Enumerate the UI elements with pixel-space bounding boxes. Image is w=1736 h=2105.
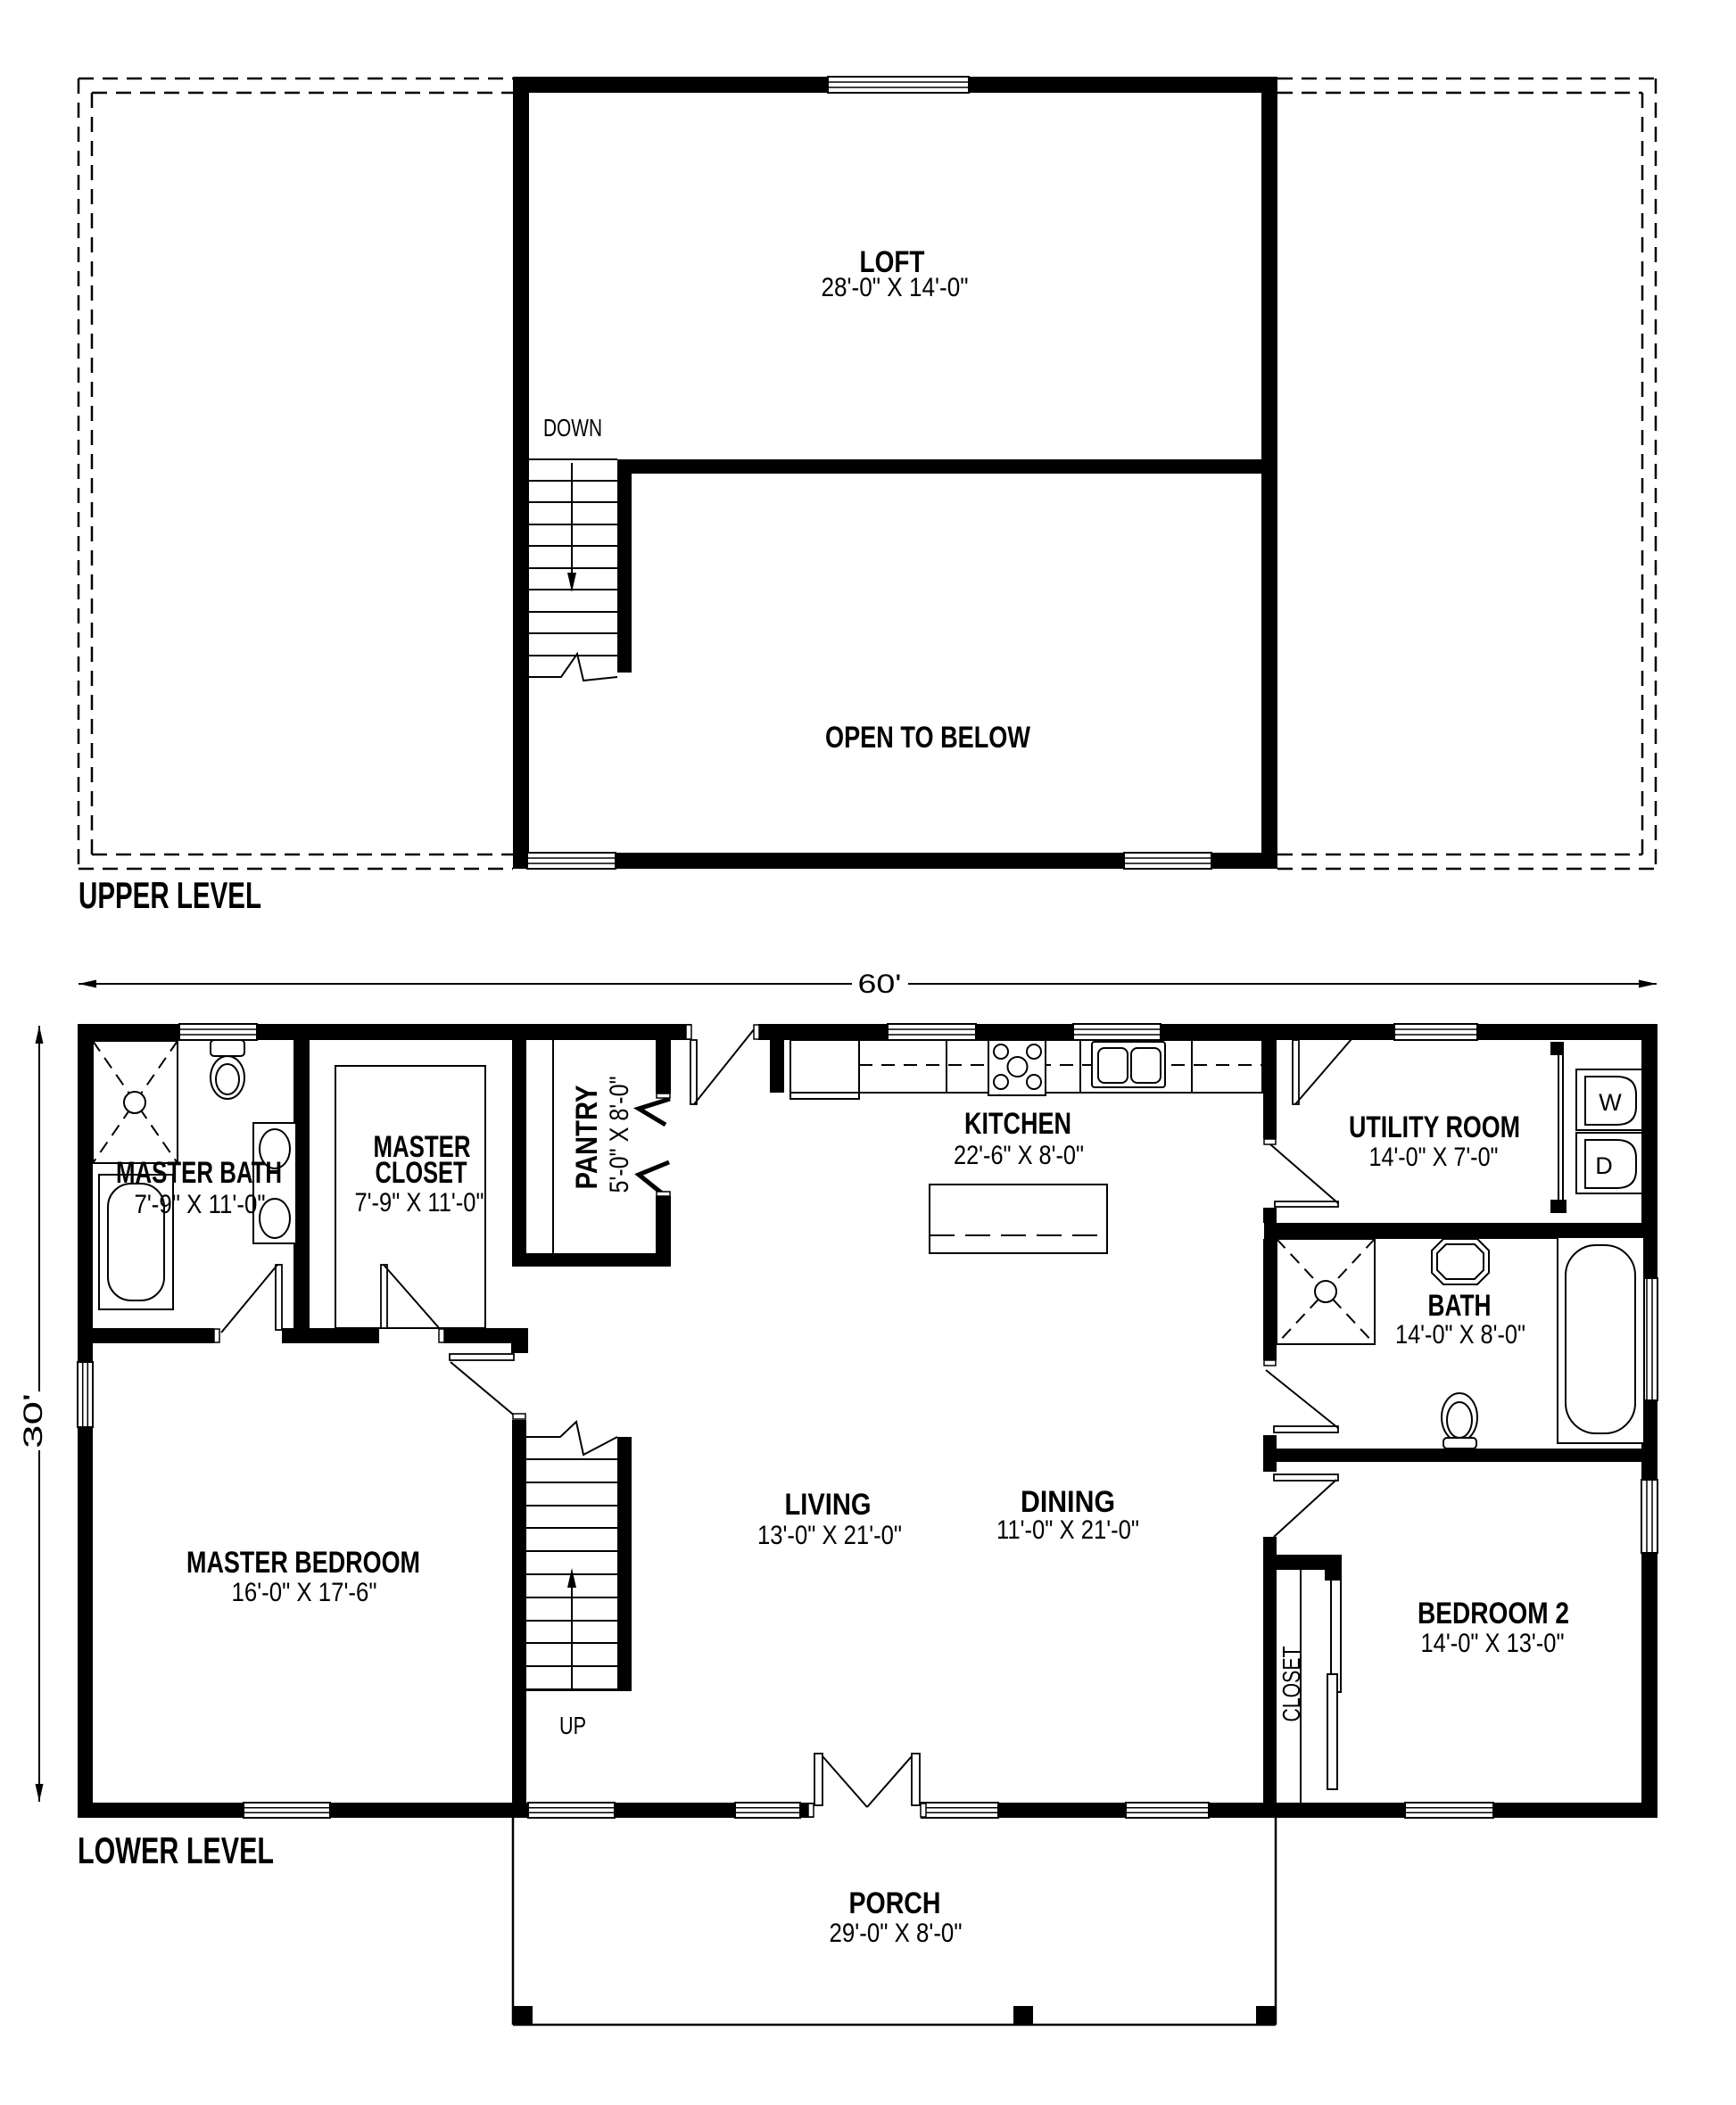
svg-text:DOWN: DOWN [543,414,602,442]
svg-text:UTILITY ROOM: UTILITY ROOM [1349,1110,1520,1144]
svg-text:29'-0" X 8'-0": 29'-0" X 8'-0" [830,1919,963,1948]
svg-text:14'-0" X 13'-0": 14'-0" X 13'-0" [1421,1629,1565,1658]
svg-text:PORCH: PORCH [849,1886,941,1920]
svg-text:DINING: DINING [1021,1485,1115,1519]
svg-text:CLOSET: CLOSET [376,1156,467,1190]
svg-text:22'-6" X 8'-0": 22'-6" X 8'-0" [954,1141,1084,1170]
svg-text:30': 30' [19,1393,48,1449]
svg-text:7'-9" X 11'-0": 7'-9" X 11'-0" [135,1190,266,1219]
svg-text:28'-0" X 14'-0": 28'-0" X 14'-0" [822,273,969,302]
svg-text:14'-0" X 8'-0": 14'-0" X 8'-0" [1395,1320,1525,1350]
svg-text:5'-0" X 8'-0": 5'-0" X 8'-0" [605,1077,634,1193]
svg-text:13'-0" X 21'-0": 13'-0" X 21'-0" [757,1521,902,1550]
svg-text:W: W [1599,1089,1622,1116]
svg-text:OPEN TO BELOW: OPEN TO BELOW [825,721,1031,755]
svg-text:LIVING: LIVING [785,1488,872,1522]
svg-text:7'-9" X 11'-0": 7'-9" X 11'-0" [355,1188,484,1218]
svg-text:CLOSET: CLOSET [1277,1647,1305,1722]
svg-text:KITCHEN: KITCHEN [964,1107,1071,1141]
svg-text:PANTRY: PANTRY [570,1085,604,1189]
svg-text:D: D [1595,1152,1613,1179]
svg-text:MASTER BATH: MASTER BATH [116,1156,282,1190]
svg-text:UPPER LEVEL: UPPER LEVEL [79,874,261,916]
svg-text:MASTER BEDROOM: MASTER BEDROOM [186,1546,420,1580]
svg-text:16'-0" X 17'-6": 16'-0" X 17'-6" [232,1578,377,1607]
svg-text:BEDROOM 2: BEDROOM 2 [1418,1597,1569,1630]
svg-text:11'-0" X 21'-0": 11'-0" X 21'-0" [996,1515,1139,1545]
svg-text:60': 60' [858,970,902,999]
svg-text:UP: UP [559,1712,586,1739]
svg-text:BATH: BATH [1428,1289,1492,1323]
svg-text:LOWER LEVEL: LOWER LEVEL [78,1829,274,1871]
svg-text:14'-0" X 7'-0": 14'-0" X 7'-0" [1369,1143,1499,1172]
